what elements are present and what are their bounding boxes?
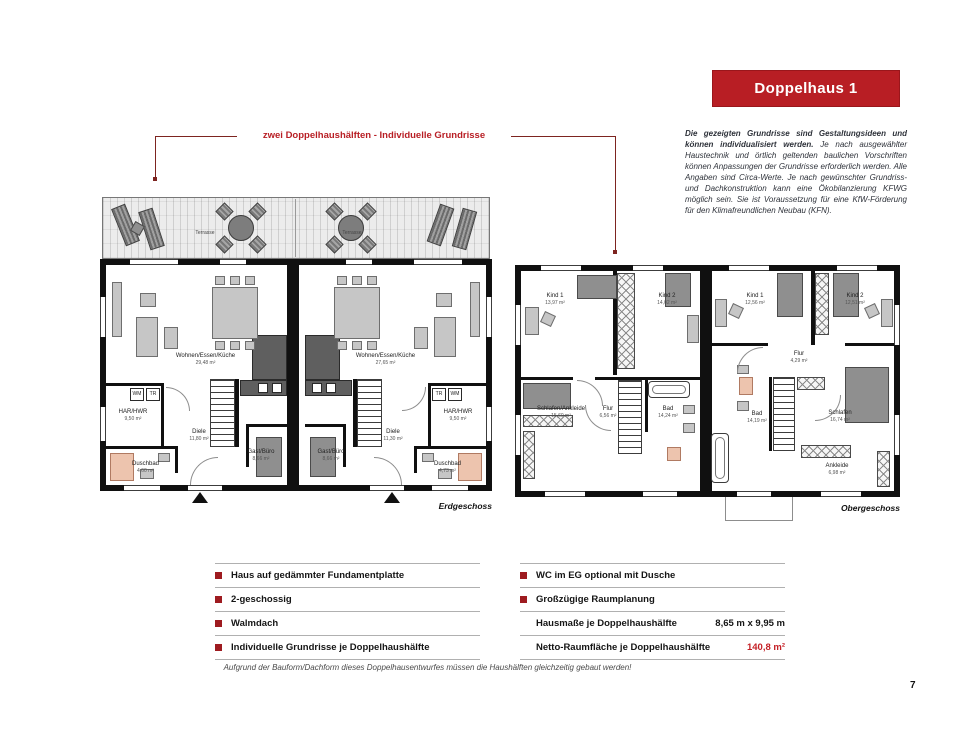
callout-dot-left bbox=[153, 177, 157, 181]
chair bbox=[337, 276, 347, 285]
room-label-har-left: HAR/HWR9,50 m² bbox=[108, 409, 158, 422]
room-label-kind2-left: Kind 214,02 m² bbox=[642, 293, 692, 306]
feature-text: Großzügige Raumplanung bbox=[536, 594, 655, 605]
eg-caption: Erdgeschoss bbox=[352, 501, 492, 511]
terrace-table bbox=[338, 215, 364, 241]
og-caption: Obergeschoss bbox=[760, 503, 900, 513]
feature-text: Haus auf gedämmter Fundamentplatte bbox=[231, 570, 404, 581]
dining-table bbox=[334, 287, 380, 339]
toilet bbox=[683, 423, 695, 433]
terrace-chair bbox=[358, 202, 376, 220]
room-label-flur-left: Flur6,56 m² bbox=[583, 406, 633, 419]
spec-value-highlight: 140,8 m² bbox=[747, 642, 785, 653]
bed-kind1 bbox=[777, 273, 803, 317]
desk bbox=[687, 315, 699, 343]
feature-item: WC im EG optional mit Dusche bbox=[520, 563, 785, 587]
wardrobe-hatch bbox=[523, 431, 535, 479]
bullet-square-icon bbox=[215, 596, 222, 603]
wall bbox=[428, 383, 486, 386]
callout-line-right-h bbox=[511, 136, 616, 137]
room-label-gast-left: Gast/Büro8,66 m² bbox=[231, 449, 291, 462]
room-name: Ankleide bbox=[812, 463, 862, 470]
shower bbox=[667, 447, 681, 461]
intro-paragraph: Die gezeigten Grundrisse sind Gestaltung… bbox=[685, 128, 907, 216]
feature-text: 2-geschossig bbox=[231, 594, 292, 605]
wall bbox=[414, 446, 486, 449]
room-area: 4,60 m² bbox=[118, 468, 173, 474]
room-area: 16,74 m² bbox=[815, 417, 865, 423]
chair bbox=[352, 341, 362, 350]
kitchen-counter bbox=[252, 335, 287, 380]
page-number: 7 bbox=[910, 680, 916, 691]
terrace-label-left: Terrasse bbox=[175, 230, 235, 236]
room-name: Kind 1 bbox=[730, 293, 780, 300]
window bbox=[729, 265, 769, 271]
room-name: Schlafen bbox=[815, 410, 865, 417]
room-name: Flur bbox=[774, 351, 824, 358]
room-area: 12,56 m² bbox=[730, 300, 780, 306]
desk bbox=[881, 299, 893, 327]
window bbox=[486, 297, 492, 337]
wall bbox=[106, 446, 178, 449]
armchair bbox=[140, 293, 156, 307]
feature-item: Haus auf gedämmter Fundamentplatte bbox=[215, 563, 480, 587]
room-label-kind2-right: Kind 212,51 m² bbox=[830, 293, 880, 306]
feature-list-right: WC im EG optional mit Dusche Großzügige … bbox=[520, 563, 785, 660]
spec-value: 8,65 m x 9,95 m bbox=[715, 618, 785, 629]
callout-line-right-v bbox=[615, 136, 616, 251]
room-name: Wohnen/Essen/Küche bbox=[158, 353, 253, 360]
bed-kind1 bbox=[577, 275, 617, 299]
terrace-chair bbox=[325, 235, 343, 253]
desk bbox=[525, 307, 539, 335]
coffee-table bbox=[414, 327, 428, 349]
room-label-diele-right: Diele11,30 m² bbox=[368, 429, 418, 442]
room-area: 14,19 m² bbox=[732, 418, 782, 424]
callout-line-left-v bbox=[155, 136, 156, 178]
callout-line-left-h bbox=[155, 136, 237, 137]
title-banner: Doppelhaus 1 bbox=[712, 70, 900, 107]
shaft-hatch bbox=[815, 273, 829, 335]
feature-item: Walmdach bbox=[215, 611, 480, 635]
room-area: 9,50 m² bbox=[108, 416, 158, 422]
room-area: 13,97 m² bbox=[530, 300, 580, 306]
window bbox=[633, 265, 663, 271]
wall bbox=[246, 424, 287, 427]
kitchen-appliance bbox=[258, 383, 268, 393]
room-name: Gast/Büro bbox=[231, 449, 291, 456]
toilet bbox=[737, 401, 749, 411]
room-name: HAR/HWR bbox=[108, 409, 158, 416]
window bbox=[821, 491, 861, 497]
feature-text: Walmdach bbox=[231, 618, 278, 629]
spec-label: Hausmaße je Doppelhaushälfte bbox=[536, 618, 677, 629]
footnote: Aufgrund der Bauform/Dachform dieses Dop… bbox=[195, 663, 660, 672]
room-area: 14,02 m² bbox=[642, 300, 692, 306]
feature-text: WC im EG optional mit Dusche bbox=[536, 570, 675, 581]
wall bbox=[414, 449, 417, 473]
room-name: Gast/Büro bbox=[301, 449, 361, 456]
window bbox=[220, 259, 246, 265]
chair bbox=[245, 341, 255, 350]
wall bbox=[706, 343, 768, 346]
wardrobe-hatch bbox=[801, 445, 851, 458]
room-area: 11,30 m² bbox=[368, 436, 418, 442]
window bbox=[124, 485, 160, 491]
sideboard bbox=[470, 282, 480, 337]
terrace-table-group bbox=[328, 205, 374, 251]
entrance-marker bbox=[192, 492, 208, 503]
terrace-table bbox=[228, 215, 254, 241]
window bbox=[545, 491, 585, 497]
terrace-door bbox=[130, 259, 178, 265]
window bbox=[515, 305, 521, 345]
window bbox=[432, 485, 468, 491]
kitchen-counter bbox=[305, 335, 340, 380]
wall bbox=[595, 377, 701, 380]
room-area: 29,48 m² bbox=[158, 360, 253, 366]
coffee-table bbox=[164, 327, 178, 349]
room-label-wohnen-right: Wohnen/Essen/Küche27,65 m² bbox=[338, 353, 433, 366]
wall bbox=[175, 449, 178, 473]
kitchen-appliance bbox=[326, 383, 336, 393]
room-area: 8,66 m² bbox=[231, 456, 291, 462]
shaft-hatch bbox=[617, 273, 635, 369]
bullet-square-icon bbox=[215, 572, 222, 579]
room-name: Duschbad bbox=[118, 461, 173, 468]
entrance-door bbox=[370, 485, 404, 491]
window bbox=[346, 259, 372, 265]
window bbox=[643, 491, 677, 497]
room-name: Kind 2 bbox=[830, 293, 880, 300]
room-label-duschbad-left: Duschbad4,60 m² bbox=[118, 461, 173, 474]
window bbox=[515, 415, 521, 455]
room-area: 6,56 m² bbox=[583, 413, 633, 419]
window bbox=[100, 297, 106, 337]
room-label-schlafen-right: Schlafen16,74 m² bbox=[815, 410, 865, 423]
armchair bbox=[436, 293, 452, 307]
desk bbox=[715, 299, 727, 327]
wall bbox=[235, 379, 239, 447]
terrace-door bbox=[414, 259, 462, 265]
room-label-gast-right: Gast/Büro8,66 m² bbox=[301, 449, 361, 462]
room-name: Flur bbox=[583, 406, 633, 413]
spec-row-net-area: Netto-Raumfläche je Doppelhaushälfte140,… bbox=[520, 635, 785, 660]
terrace-table-group bbox=[218, 205, 264, 251]
feature-item: Individuelle Grundrisse je Doppelhaushäl… bbox=[215, 635, 480, 660]
terrace-chair bbox=[215, 235, 233, 253]
floorplan-erdgeschoss: Terrasse Terrasse WM TR bbox=[100, 197, 492, 515]
window bbox=[100, 407, 106, 441]
room-area: 11,80 m² bbox=[174, 436, 224, 442]
room-label-kind1-left: Kind 113,97 m² bbox=[530, 293, 580, 306]
washer-box: WM bbox=[448, 388, 462, 401]
room-label-flur-right: Flur4,29 m² bbox=[774, 351, 824, 364]
room-name: HAR/HWR bbox=[433, 409, 483, 416]
room-area: 27,65 m² bbox=[338, 360, 433, 366]
bathtub bbox=[711, 433, 729, 483]
window bbox=[541, 265, 581, 271]
spec-row-dimensions: Hausmaße je Doppelhaushälfte8,65 m x 9,9… bbox=[520, 611, 785, 635]
chair bbox=[367, 276, 377, 285]
room-name: Diele bbox=[174, 429, 224, 436]
wall bbox=[305, 424, 346, 427]
bullet-square-icon bbox=[520, 596, 527, 603]
room-area: 12,51 m² bbox=[830, 300, 880, 306]
feature-item: Großzügige Raumplanung bbox=[520, 587, 785, 611]
terrace-chair bbox=[248, 202, 266, 220]
chair bbox=[337, 341, 347, 350]
bathtub bbox=[648, 381, 690, 398]
chair bbox=[352, 276, 362, 285]
wall bbox=[428, 383, 431, 449]
bullet-square-icon bbox=[215, 620, 222, 627]
wall bbox=[845, 343, 894, 346]
chair bbox=[230, 276, 240, 285]
bullet-square-icon bbox=[520, 572, 527, 579]
callout-dot-right bbox=[613, 250, 617, 254]
chair bbox=[215, 276, 225, 285]
intro-rest: Je nach ausgewählter Haustechnik und ört… bbox=[685, 140, 907, 215]
floorplan-obergeschoss: Kind 113,97 m² Kind 214,02 m² Schlafen/A… bbox=[515, 265, 900, 527]
terrace-chair bbox=[358, 235, 376, 253]
feature-item: 2-geschossig bbox=[215, 587, 480, 611]
terrace-chair bbox=[248, 235, 266, 253]
feature-list-left: Haus auf gedämmter Fundamentplatte 2-ges… bbox=[215, 563, 480, 660]
wall bbox=[521, 377, 573, 380]
room-area: 8,66 m² bbox=[301, 456, 361, 462]
window bbox=[894, 415, 900, 455]
washer-box: WM bbox=[130, 388, 144, 401]
chair bbox=[230, 341, 240, 350]
sofa bbox=[136, 317, 158, 357]
room-label-bad-left: Bad14,24 m² bbox=[643, 406, 693, 419]
sideboard bbox=[112, 282, 122, 337]
spec-label: Netto-Raumfläche je Doppelhaushälfte bbox=[536, 642, 710, 653]
room-label-kind1-right: Kind 112,56 m² bbox=[730, 293, 780, 306]
sofa bbox=[434, 317, 456, 357]
terrace-divider bbox=[295, 199, 296, 257]
room-name: Bad bbox=[643, 406, 693, 413]
brochure-page: { "colors":{"accent":"#b81e24","bullet":… bbox=[0, 0, 960, 740]
kitchen-appliance bbox=[272, 383, 282, 393]
room-label-har-right: HAR/HWR9,50 m² bbox=[433, 409, 483, 422]
window bbox=[837, 265, 877, 271]
window bbox=[486, 407, 492, 441]
shower bbox=[739, 377, 753, 395]
room-name: Kind 1 bbox=[530, 293, 580, 300]
room-name: Diele bbox=[368, 429, 418, 436]
chair bbox=[245, 276, 255, 285]
room-label-duschbad-right: Duschbad4,73 m² bbox=[420, 461, 475, 474]
terrace-label-right: Terrasse bbox=[322, 230, 382, 236]
wardrobe-hatch bbox=[877, 451, 890, 487]
window bbox=[894, 305, 900, 345]
room-area: 4,29 m² bbox=[774, 358, 824, 364]
entrance-door bbox=[188, 485, 222, 491]
dryer-box: TR bbox=[146, 388, 160, 401]
dining-table bbox=[212, 287, 258, 339]
room-area: 6,98 m² bbox=[812, 470, 862, 476]
callout-label: zwei Doppelhaushälften - Individuelle Gr… bbox=[238, 130, 510, 141]
kitchen-appliance bbox=[312, 383, 322, 393]
feature-text: Individuelle Grundrisse je Doppelhaushäl… bbox=[231, 642, 429, 653]
room-area: 9,50 m² bbox=[433, 416, 483, 422]
wall bbox=[106, 383, 164, 386]
room-area: 14,24 m² bbox=[643, 413, 693, 419]
room-name: Bad bbox=[732, 411, 782, 418]
room-label-wohnen-left: Wohnen/Essen/Küche29,48 m² bbox=[158, 353, 253, 366]
room-label-bad-right: Bad14,19 m² bbox=[732, 411, 782, 424]
chair bbox=[215, 341, 225, 350]
room-name: Kind 2 bbox=[642, 293, 692, 300]
room-label-diele-left: Diele11,80 m² bbox=[174, 429, 224, 442]
room-name: Duschbad bbox=[420, 461, 475, 468]
room-label-ankleide-right: Ankleide6,98 m² bbox=[812, 463, 862, 476]
room-area: 4,73 m² bbox=[420, 468, 475, 474]
chair bbox=[367, 341, 377, 350]
wall bbox=[161, 383, 164, 449]
dryer-box: TR bbox=[432, 388, 446, 401]
bullet-square-icon bbox=[215, 644, 222, 651]
shaft-hatch bbox=[797, 377, 825, 390]
room-name: Wohnen/Essen/Küche bbox=[338, 353, 433, 360]
